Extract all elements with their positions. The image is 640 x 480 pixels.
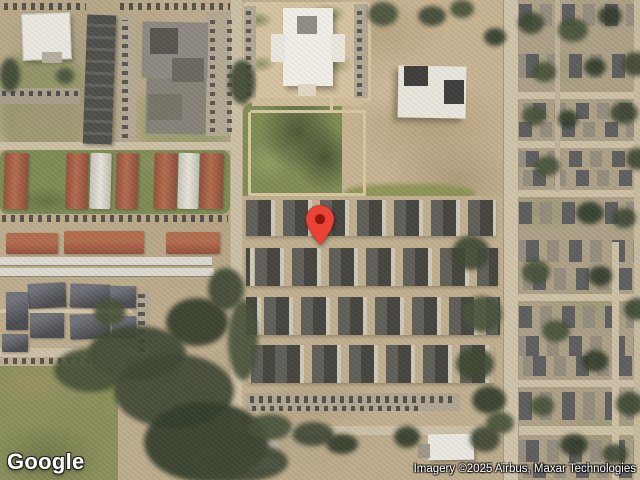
tree-canopy (610, 102, 638, 124)
parked-cars-row (4, 3, 86, 10)
apartment-building (3, 153, 28, 210)
apartment-red-horizontal-1 (6, 233, 58, 254)
storage-row-a (0, 257, 212, 266)
tree-canopy (532, 62, 556, 82)
tree-canopy (0, 58, 20, 92)
plaza-drive (252, 98, 364, 106)
tree-canopy (484, 28, 506, 46)
tree-canopy (326, 434, 358, 454)
park-trail-spur (330, 96, 333, 112)
tree-canopy (602, 444, 628, 464)
apartment-building (199, 153, 223, 210)
imagery-attribution: Imagery ©2025 Airbus, Maxar Technologies (414, 463, 636, 475)
park-trail-east (363, 112, 366, 196)
tree-canopy (518, 12, 544, 34)
school-roof-dark-2 (172, 58, 204, 82)
park-trail-north (250, 110, 366, 113)
tree-canopy (582, 350, 608, 372)
tree-canopy (450, 0, 474, 18)
tree-canopy (612, 208, 636, 228)
parked-cars-row (252, 406, 420, 411)
building-annex-south (418, 444, 430, 458)
parked-cars-column (357, 8, 362, 96)
google-logo[interactable]: Google (7, 449, 85, 475)
park-trail-west (248, 112, 251, 196)
townhome-roof (30, 313, 64, 338)
tree-canopy (462, 296, 502, 332)
tree-canopy (542, 320, 570, 342)
tree-canopy (558, 110, 578, 128)
apartment-red-horizontal-2 (64, 231, 144, 254)
church-wing-west (271, 34, 285, 62)
park-trail-south (250, 193, 366, 196)
road-left-mid (0, 142, 232, 150)
tree-canopy (584, 58, 606, 76)
building-annex-northwest (42, 52, 62, 63)
apartment-building (89, 153, 111, 210)
tree-canopy (94, 298, 126, 326)
tree-canopy (560, 434, 588, 456)
rn-street-4 (517, 294, 640, 301)
field-building-dark-roof-b (444, 80, 464, 104)
tree-canopy (190, 442, 288, 480)
map-pin[interactable] (306, 205, 334, 245)
building-white-south (428, 434, 474, 461)
parked-cars-row (2, 215, 228, 222)
apartment-dark-long (83, 15, 116, 145)
apartment-building (153, 153, 177, 210)
tree-canopy (470, 426, 500, 452)
school-roof-dark-1 (150, 28, 178, 54)
tree-canopy (576, 202, 604, 224)
rn-street-1 (517, 92, 640, 99)
tree-canopy (452, 236, 490, 270)
rn-street-3 (517, 190, 640, 197)
pin-inner-dot (315, 214, 325, 224)
tree-canopy (522, 106, 546, 126)
apartment-red-horizontal-3 (166, 232, 220, 254)
parked-cars-row (120, 3, 230, 10)
apartment-building (177, 153, 199, 210)
rn-street-2 (517, 141, 640, 148)
rn-street-5 (517, 380, 640, 387)
tree-canopy (472, 386, 506, 414)
tree-canopy (229, 60, 255, 104)
townhome-roof (27, 282, 66, 309)
tree-canopy (616, 392, 640, 416)
tree-canopy (368, 2, 398, 26)
pin-body (306, 205, 334, 245)
parked-cars-column (122, 20, 128, 138)
tree-canopy (56, 68, 74, 84)
main-road (503, 0, 519, 480)
townhouse-row (246, 200, 496, 236)
school-roof-dark-3 (148, 94, 182, 120)
tree-canopy (534, 156, 560, 176)
parked-cars-row (250, 396, 456, 403)
townhome-roof (2, 334, 28, 352)
tree-canopy (588, 266, 612, 286)
field-building-dark-roof-a (404, 66, 428, 86)
tree-canopy (394, 426, 420, 448)
townhome-roof (6, 292, 28, 330)
satellite-map[interactable]: Google Imagery ©2025 Airbus, Maxar Techn… (0, 0, 640, 480)
tree-canopy (228, 300, 258, 380)
apartment-building (115, 153, 138, 210)
tree-canopy (418, 6, 446, 26)
tree-canopy (598, 6, 622, 26)
church-walkway (298, 84, 316, 96)
tree-canopy (530, 396, 554, 416)
tree-canopy (248, 414, 292, 440)
tree-canopy (558, 18, 588, 42)
church-wing-east (331, 34, 345, 62)
storage-row-b (0, 268, 214, 277)
church-tower (295, 14, 319, 36)
parked-cars-column (210, 16, 215, 132)
apartment-building (65, 153, 88, 210)
parked-cars-row (2, 91, 78, 96)
tree-canopy (522, 260, 550, 284)
tree-canopy (456, 348, 494, 380)
